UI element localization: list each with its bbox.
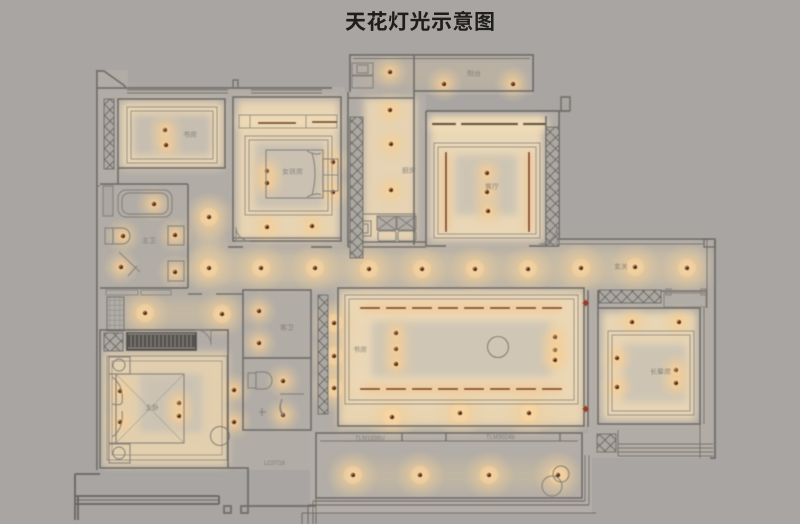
svg-text:TLM1836U: TLM1836U xyxy=(355,436,385,442)
svg-text:TLM3024b: TLM3024b xyxy=(486,435,515,441)
svg-text:LC0718: LC0718 xyxy=(264,461,286,467)
